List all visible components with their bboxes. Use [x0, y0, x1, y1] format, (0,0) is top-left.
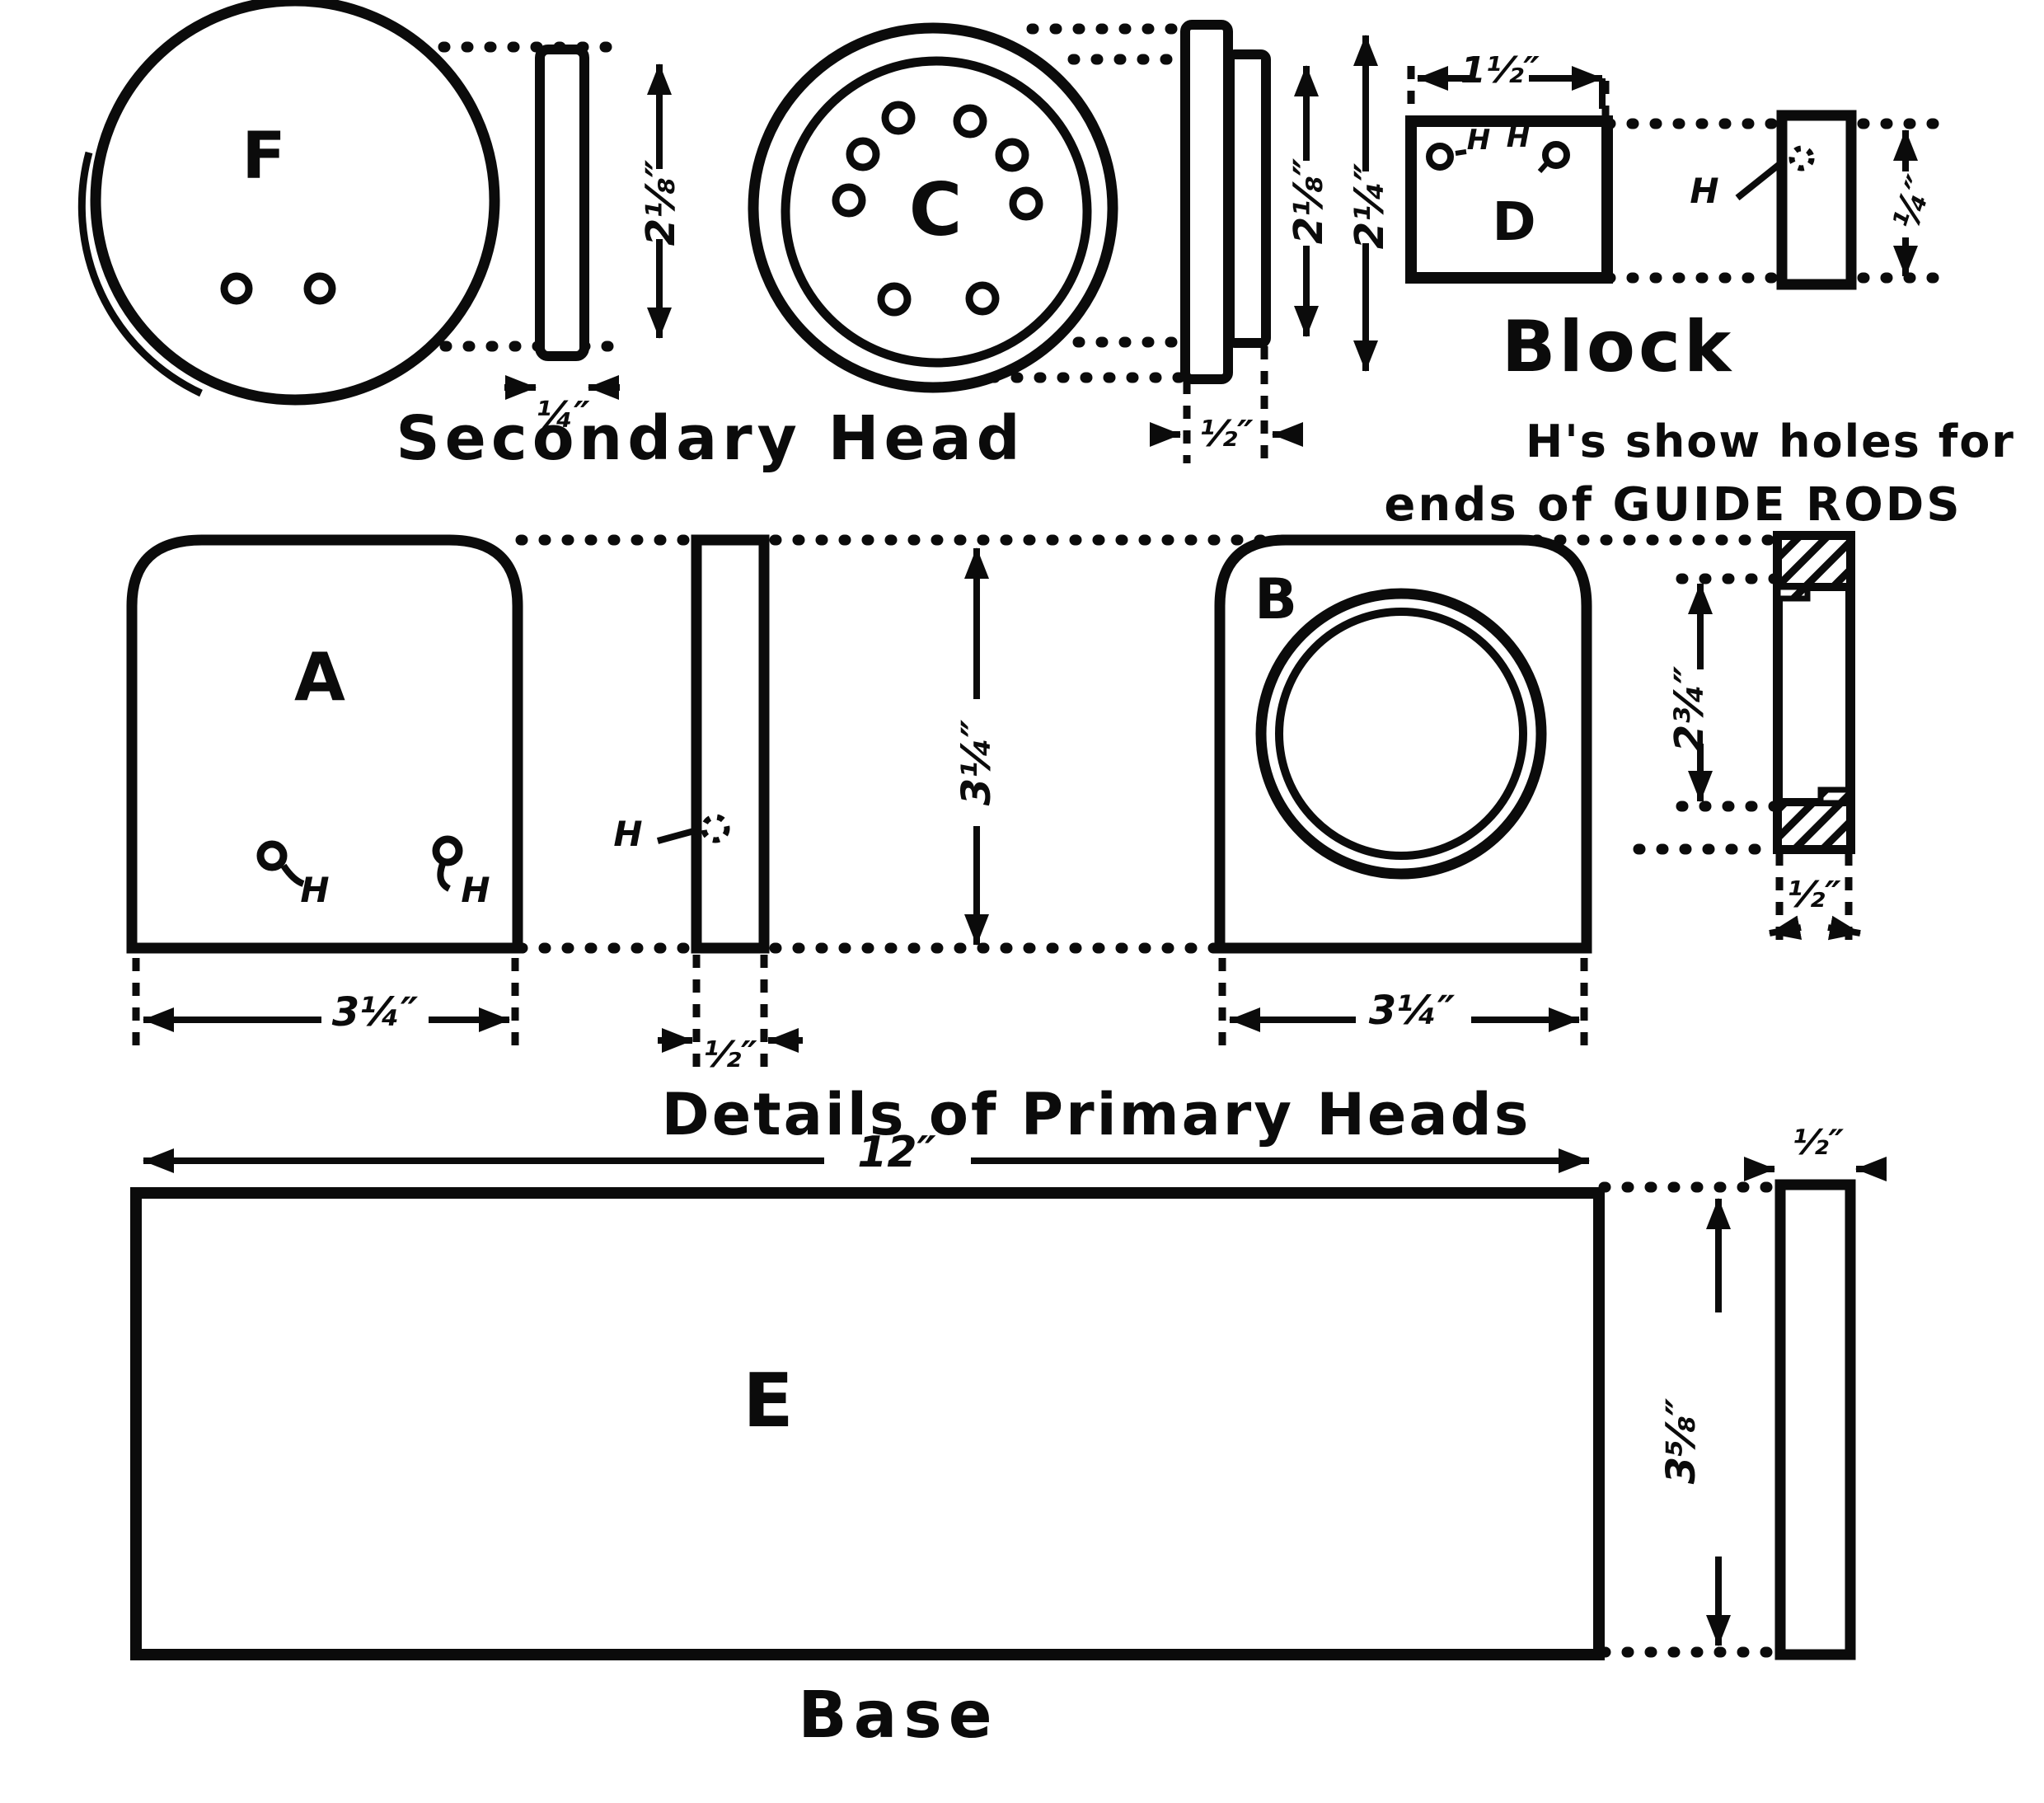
dim-d-width: 1½″ [1460, 53, 1540, 89]
hole [1545, 144, 1567, 166]
hole [260, 844, 284, 867]
caption-block: Block [1502, 312, 1734, 383]
disc-f-side-view [540, 49, 584, 356]
hole-label-h-a-right: H [461, 873, 490, 908]
h-leader-line [1737, 165, 1779, 198]
base-e-front-view [136, 1193, 1599, 1655]
hole [436, 839, 459, 862]
caption-note-line1: H's show holes for [1526, 420, 2015, 464]
caption-note-line2: ends of GUIDE RODS [1384, 482, 1962, 528]
dim-heads-height: 3¼″ [957, 720, 996, 806]
dim-f-height: 2⅛″ [641, 160, 681, 247]
base-e-side-view [1780, 1185, 1850, 1655]
part-label-f: F [241, 124, 285, 189]
head-a-side-view [658, 540, 764, 948]
hole-label-h-d-right: H [1507, 124, 1530, 152]
hole-label-h-d-left: H [1467, 126, 1490, 154]
drawing-sheet: F C D A B E H H H H H H 2⅛″ ¼″ 2⅛″ 2¼″ ½… [0, 0, 2044, 1803]
dim-c-inner-height: 2⅛″ [1289, 158, 1329, 245]
dim-c-outer-height: 2¼″ [1350, 163, 1390, 250]
dim-a-width: 3¼″ [332, 993, 419, 1032]
head-b-side-view-hatched [1778, 536, 1850, 849]
hatch-top-step [1778, 587, 1807, 599]
dim-b-side-opening: 2¾″ [1670, 666, 1709, 753]
part-label-c: C [909, 174, 963, 247]
hole [1429, 146, 1451, 167]
part-label-b: B [1254, 572, 1297, 628]
hole [307, 276, 332, 301]
hatch-bottom [1778, 802, 1850, 849]
dim-e-height: 3⅝″ [1662, 1398, 1701, 1485]
caption-secondary-head: Secondary Head [396, 408, 1024, 469]
large-bore-inner [1279, 612, 1523, 856]
caption-base: Base [798, 1683, 998, 1748]
disc-f-front-view [82, 1, 495, 400]
caption-primary-heads: Details of Primary Heads [662, 1086, 1531, 1143]
hole-label-h-a-left: H [300, 873, 329, 908]
part-label-d: D [1492, 196, 1535, 249]
hole-label-h-strip: H [613, 817, 642, 852]
block-d-side-view [1737, 115, 1851, 284]
hatch-top [1778, 536, 1850, 587]
hole-label-h-d-side: H [1690, 174, 1718, 209]
hatch-bottom-step [1821, 790, 1850, 803]
part-label-a: A [294, 645, 345, 711]
h-leader-line [658, 831, 694, 841]
dim-c-thickness: ½″ [1199, 416, 1253, 453]
dim-b-thickness: ½″ [1787, 877, 1840, 913]
leader-dash [1456, 152, 1466, 153]
part-label-e: E [743, 1364, 793, 1439]
dim-a-thickness: ½″ [703, 1037, 757, 1073]
dim-e-thickness: ½″ [1793, 1125, 1844, 1160]
disc-c-side-view [1185, 25, 1266, 379]
dim-b-width: 3¼″ [1369, 991, 1456, 1031]
hole [224, 276, 249, 301]
